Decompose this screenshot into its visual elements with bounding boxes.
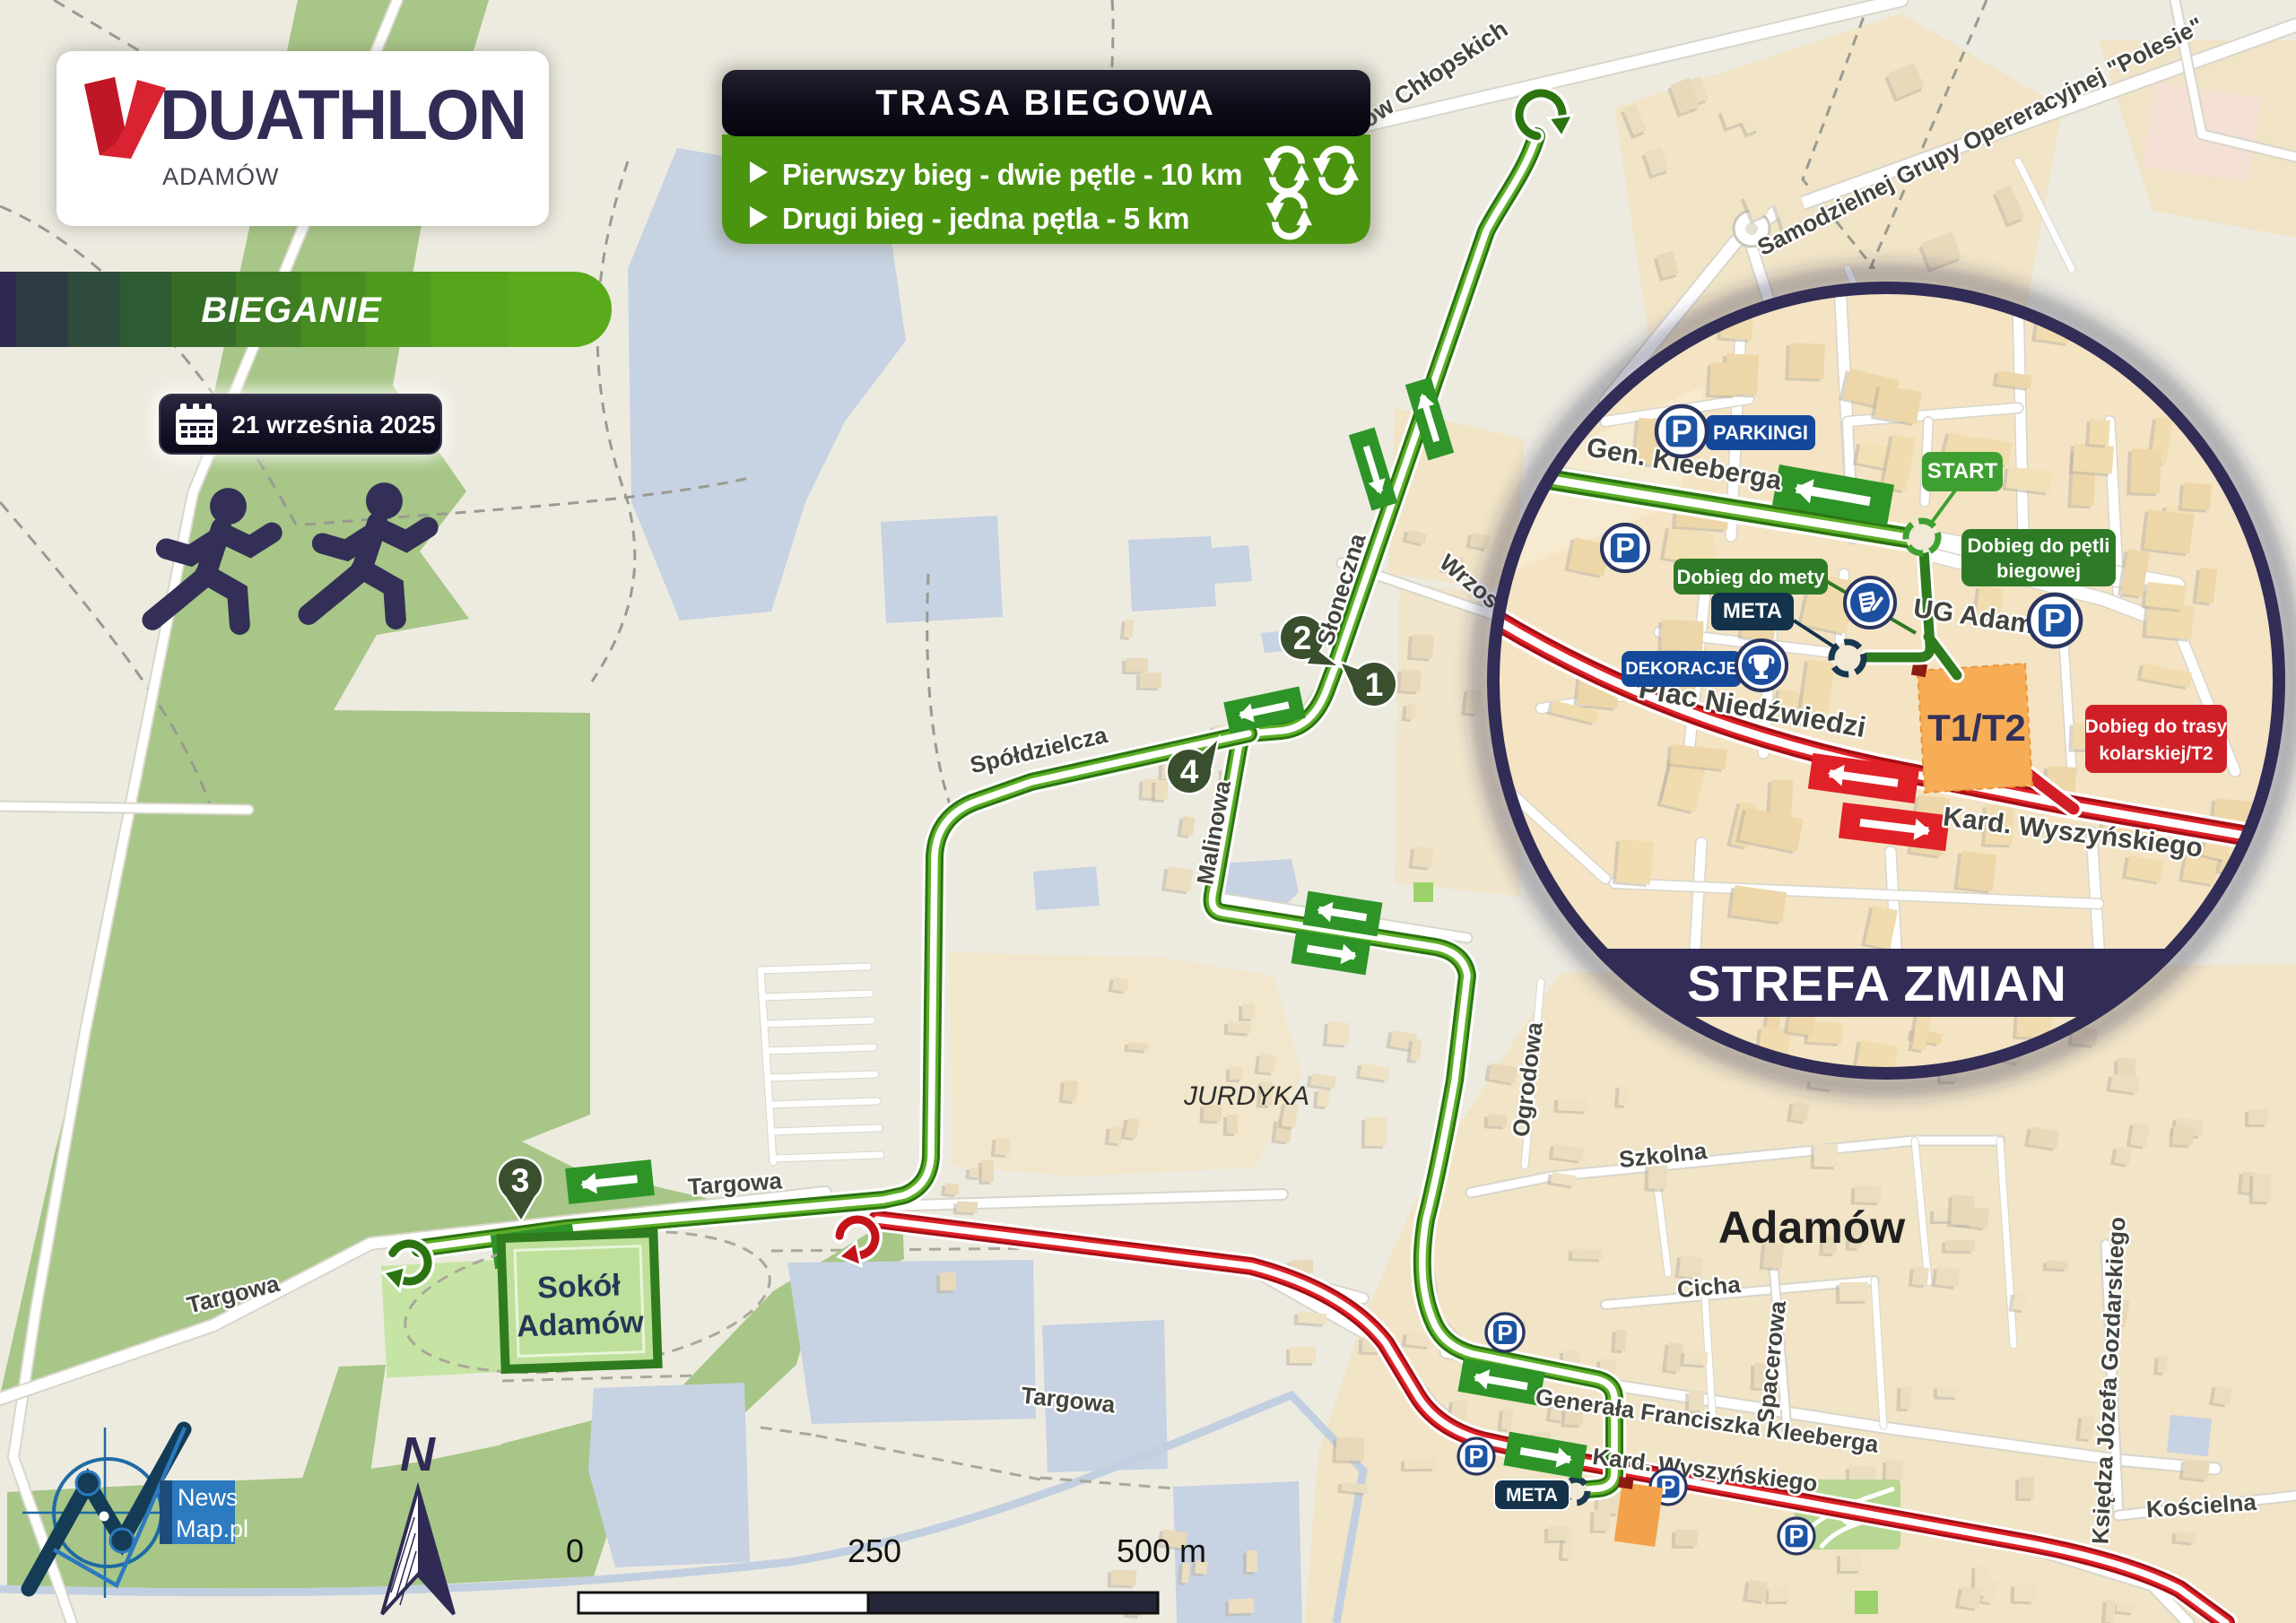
- svg-text:STREFA ZMIAN: STREFA ZMIAN: [1687, 955, 2067, 1011]
- svg-text:Pierwszy bieg - dwie pętle - 1: Pierwszy bieg - dwie pętle - 10 km: [782, 158, 1242, 191]
- svg-text:DEKORACJE: DEKORACJE: [1625, 659, 1738, 679]
- svg-text:0: 0: [566, 1532, 584, 1569]
- svg-text:P: P: [2044, 602, 2066, 638]
- svg-text:Dobieg do mety: Dobieg do mety: [1676, 566, 1825, 588]
- svg-text:P: P: [1615, 532, 1635, 564]
- svg-text:P: P: [1671, 414, 1692, 449]
- svg-text:Cicha: Cicha: [1676, 1271, 1743, 1303]
- svg-text:META: META: [1506, 1485, 1558, 1506]
- svg-text:4: 4: [1180, 753, 1199, 790]
- svg-text:21 września 2025: 21 września 2025: [231, 411, 435, 438]
- svg-text:biegowej: biegowej: [1996, 560, 2081, 582]
- svg-text:500 m: 500 m: [1117, 1532, 1206, 1569]
- svg-text:START: START: [1927, 459, 1998, 483]
- svg-text:N: N: [400, 1428, 436, 1481]
- svg-text:Adamów: Adamów: [1718, 1202, 1905, 1253]
- svg-text:250: 250: [848, 1532, 901, 1569]
- svg-text:Map.pl: Map.pl: [176, 1515, 248, 1542]
- svg-text:P: P: [1497, 1319, 1513, 1346]
- svg-text:P: P: [1469, 1444, 1484, 1469]
- svg-text:P: P: [1789, 1523, 1805, 1549]
- svg-text:Adamów: Adamów: [516, 1306, 644, 1344]
- svg-text:DUATHLON: DUATHLON: [160, 74, 526, 154]
- svg-text:Dobieg do trasy: Dobieg do trasy: [2085, 716, 2228, 737]
- svg-text:PARKINGI: PARKINGI: [1713, 421, 1808, 444]
- svg-text:ADAMÓW: ADAMÓW: [162, 162, 280, 190]
- svg-text:TRASA BIEGOWA: TRASA BIEGOWA: [875, 83, 1216, 123]
- svg-text:Sokół: Sokół: [537, 1268, 622, 1305]
- svg-text:JURDYKA: JURDYKA: [1183, 1081, 1309, 1111]
- svg-text:Dobieg do pętli: Dobieg do pętli: [1968, 534, 2110, 557]
- svg-text:META: META: [1723, 599, 1782, 623]
- svg-text:1: 1: [1365, 666, 1384, 703]
- svg-text:News: News: [178, 1484, 239, 1511]
- svg-text:Drugi bieg - jedna pętla - 5 k: Drugi bieg - jedna pętla - 5 km: [782, 202, 1189, 235]
- svg-text:3: 3: [511, 1162, 530, 1199]
- svg-text:T1/T2: T1/T2: [1927, 707, 2026, 749]
- svg-text:BIEGANIE: BIEGANIE: [201, 291, 382, 330]
- svg-text:2: 2: [1293, 620, 1312, 656]
- svg-text:kolarskiej/T2: kolarskiej/T2: [2099, 743, 2213, 764]
- svg-text:P: P: [1661, 1474, 1676, 1499]
